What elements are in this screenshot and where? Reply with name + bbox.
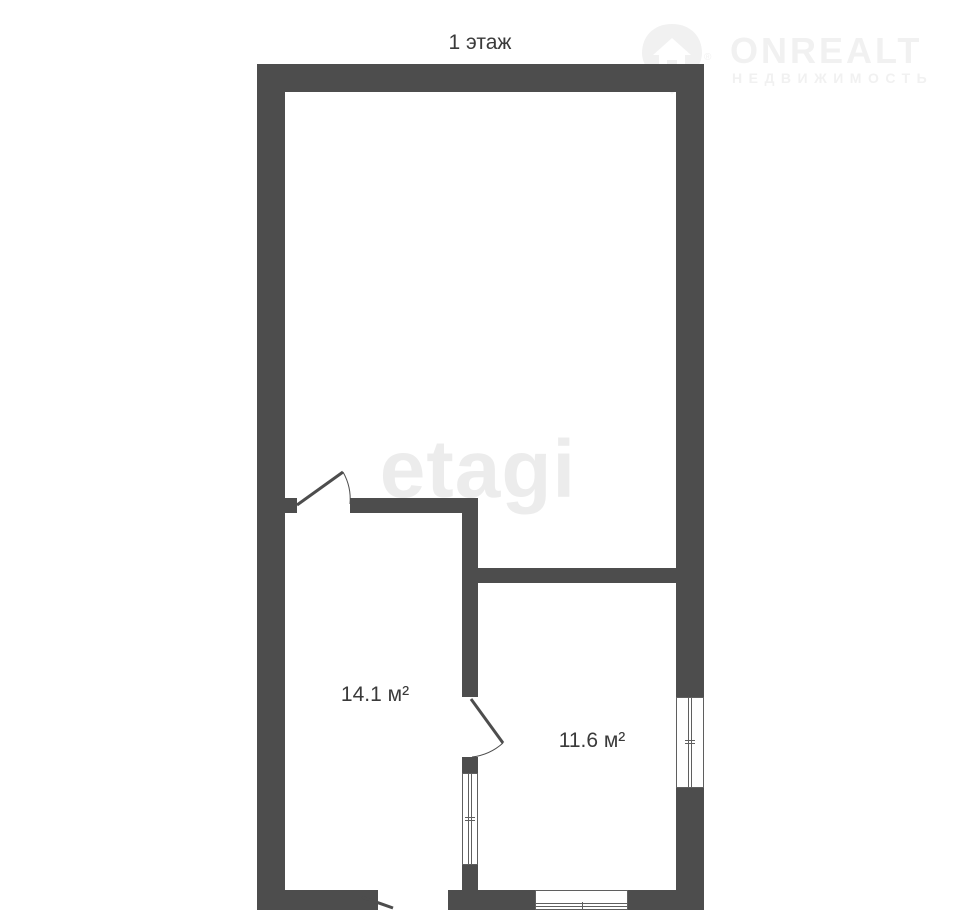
window-mid-tick: [582, 902, 583, 909]
wall-left: [257, 64, 285, 910]
floor-title: 1 этаж: [0, 31, 960, 55]
wall-top: [257, 64, 704, 92]
door2-swing-arc: [472, 743, 503, 757]
window-right-wall: [676, 697, 704, 788]
window-mid-tick: [685, 740, 695, 744]
room-area-label: 14.1 м²: [341, 683, 409, 707]
wall-bottom-right-segment: [628, 890, 704, 910]
interior-wall-vertical-stub-upper: [462, 757, 478, 773]
interior-wall-vertical: [462, 498, 478, 697]
window-interior-wall: [462, 773, 478, 865]
door1-leaf: [297, 472, 343, 505]
interior-wall-room11-top: [462, 568, 676, 583]
logo-subtitle-text: НЕДВИЖИМОСТЬ: [732, 70, 933, 86]
wall-bottom-mid-segment: [448, 890, 535, 910]
wall-bottom-left-segment: [257, 890, 378, 910]
window-bottom-wall: [535, 890, 628, 910]
door1-hinge-stub: [285, 498, 297, 513]
interior-wall-vertical-stub-lower: [462, 865, 478, 890]
floor-plan-canvas: 1 этаж etagi ® ONREALT НЕДВИЖИМОСТЬ: [0, 0, 960, 910]
window-mid-tick: [465, 817, 475, 821]
interior-wall-room14-top: [350, 498, 478, 513]
door2-leaf: [471, 699, 503, 743]
room-area-label: 11.6 м²: [559, 729, 626, 753]
